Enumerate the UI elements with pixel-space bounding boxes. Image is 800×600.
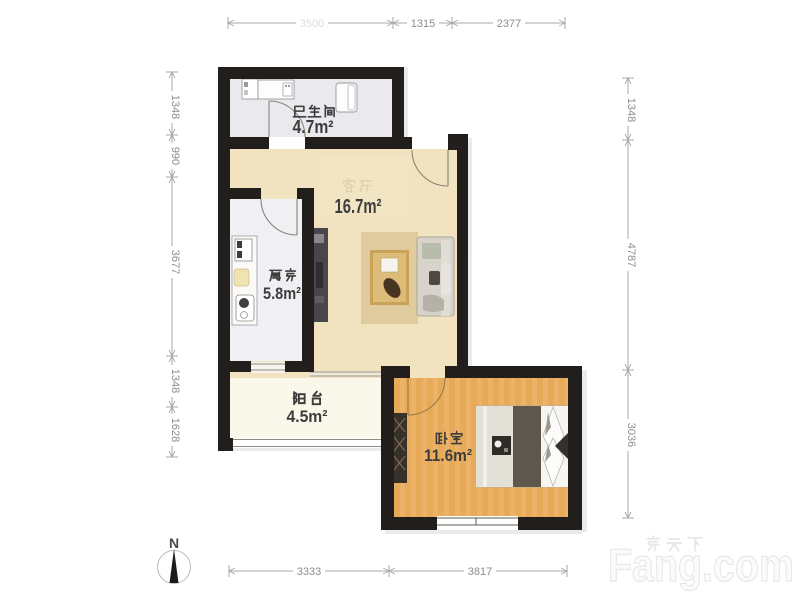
- svg-text:1348: 1348: [169, 95, 181, 119]
- svg-text:1348: 1348: [169, 369, 181, 393]
- svg-text:1315: 1315: [411, 18, 435, 30]
- svg-text:4.5m²: 4.5m²: [287, 407, 328, 426]
- svg-text:990: 990: [169, 147, 181, 165]
- svg-text:3817: 3817: [468, 566, 492, 578]
- svg-text:3333: 3333: [297, 566, 321, 578]
- svg-text:16.7m²: 16.7m²: [335, 196, 382, 218]
- svg-text:4.7m²: 4.7m²: [293, 117, 334, 137]
- svg-text:5.8m²: 5.8m²: [263, 284, 301, 303]
- svg-text:4787: 4787: [625, 243, 637, 267]
- svg-text:3677: 3677: [169, 250, 181, 274]
- svg-text:3036: 3036: [625, 423, 637, 447]
- svg-text:11.6m²: 11.6m²: [424, 446, 472, 465]
- svg-text:1628: 1628: [169, 418, 181, 442]
- svg-text:N: N: [169, 535, 179, 551]
- svg-text:2377: 2377: [497, 18, 521, 30]
- svg-text:3500: 3500: [300, 18, 324, 30]
- svg-text:Fang.com: Fang.com: [608, 539, 794, 591]
- svg-text:1348: 1348: [625, 98, 637, 122]
